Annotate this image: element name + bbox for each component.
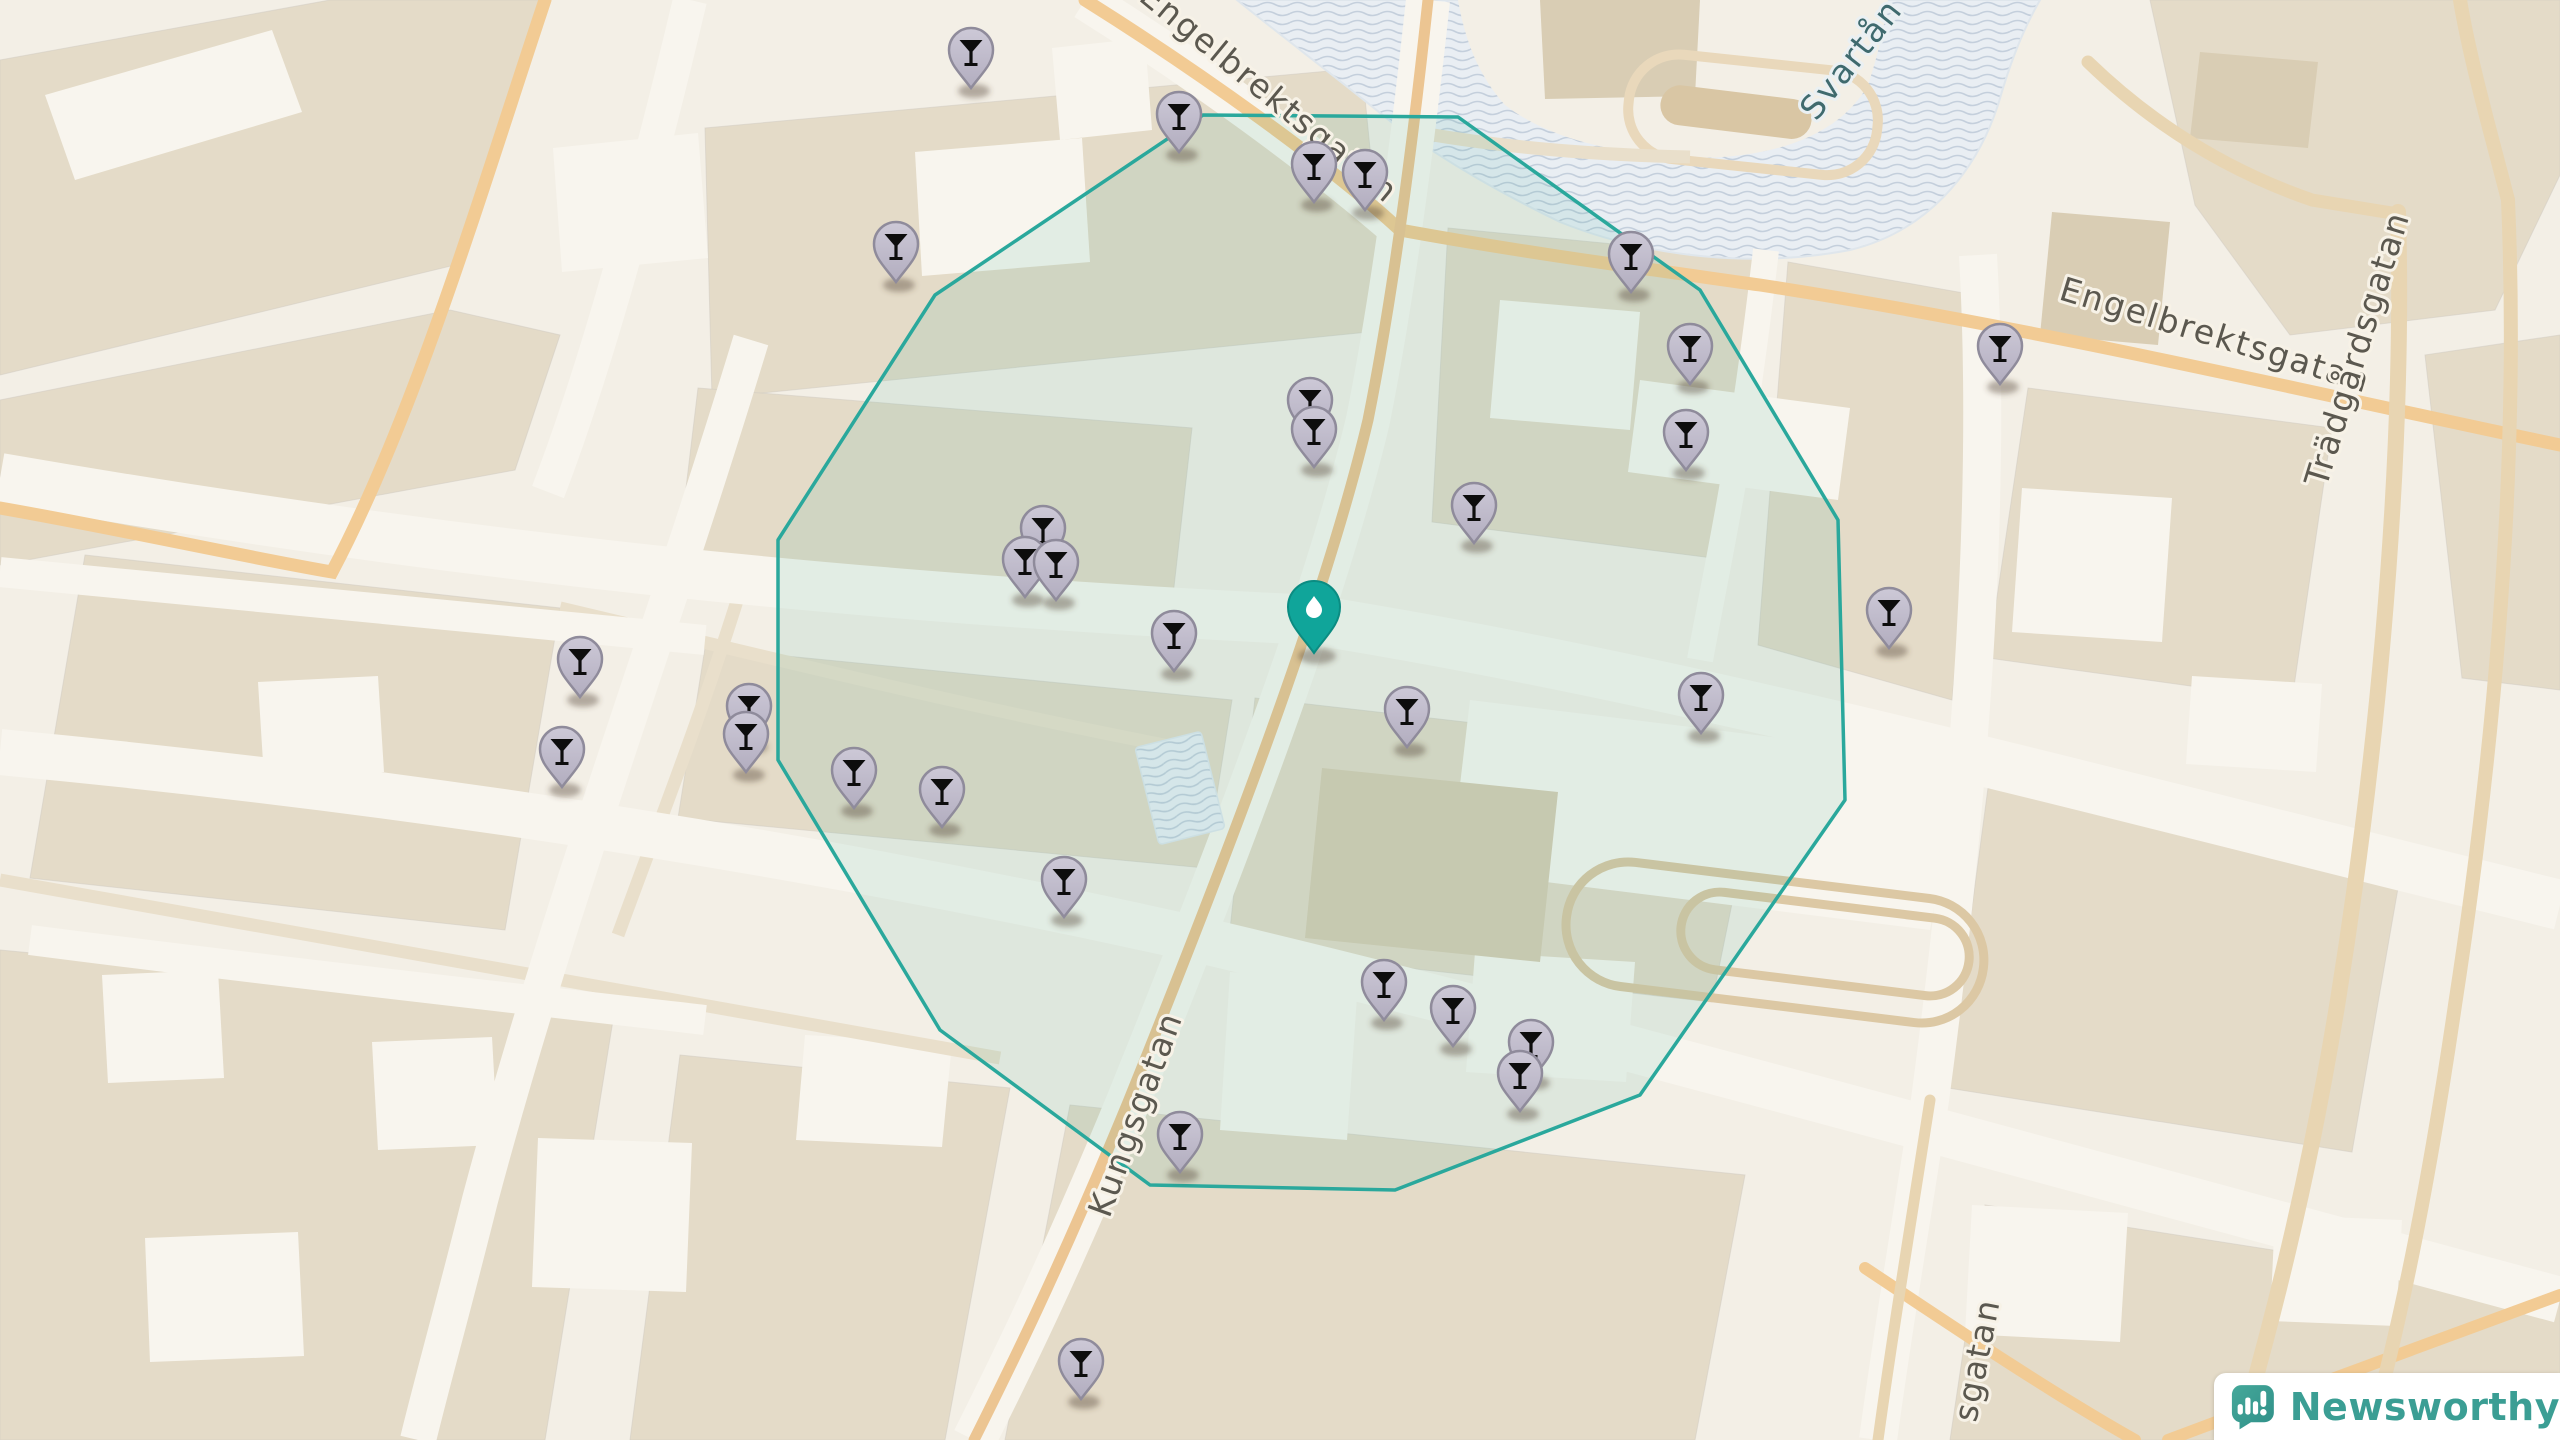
newsworthy-logo-icon xyxy=(2230,1383,2276,1431)
pin-shadow xyxy=(567,693,599,707)
pin-shadow xyxy=(1618,288,1650,302)
pin-shadow xyxy=(1043,596,1075,610)
pin-shadow xyxy=(1051,913,1083,927)
pin-shadow xyxy=(1301,198,1333,212)
pin-shadow xyxy=(1167,1168,1199,1182)
pin-shadow xyxy=(1673,466,1705,480)
pin-shadow xyxy=(1012,593,1044,607)
pin-shadow xyxy=(1371,1016,1403,1030)
pin-shadow xyxy=(1068,1395,1100,1409)
pin-shadow xyxy=(841,804,873,818)
pin-shadow xyxy=(1677,380,1709,394)
map-canvas[interactable]: Engelbrektsgatan Engelbrektsgatan Trädgå… xyxy=(0,0,2560,1440)
pin-shadow xyxy=(1987,380,2019,394)
pin-shadow xyxy=(1461,539,1493,553)
newsworthy-logo[interactable]: Newsworthy xyxy=(2214,1373,2560,1440)
pin-shadow xyxy=(883,278,915,292)
pin-shadow xyxy=(1161,667,1193,681)
pin-shadow xyxy=(1440,1042,1472,1056)
pin-shadow xyxy=(733,768,765,782)
pin-shadow xyxy=(1688,729,1720,743)
pin-shadow xyxy=(1166,148,1198,162)
pin-shadow xyxy=(1301,463,1333,477)
pin-shadow xyxy=(549,783,581,797)
pin-shadow xyxy=(1352,206,1384,220)
pin-shadow xyxy=(1876,644,1908,658)
newsworthy-logo-text: Newsworthy xyxy=(2290,1385,2560,1429)
pin-shadow xyxy=(1507,1107,1539,1121)
pin-shadow xyxy=(929,823,961,837)
pin-shadow xyxy=(958,84,990,98)
pin-shadow xyxy=(1394,743,1426,757)
